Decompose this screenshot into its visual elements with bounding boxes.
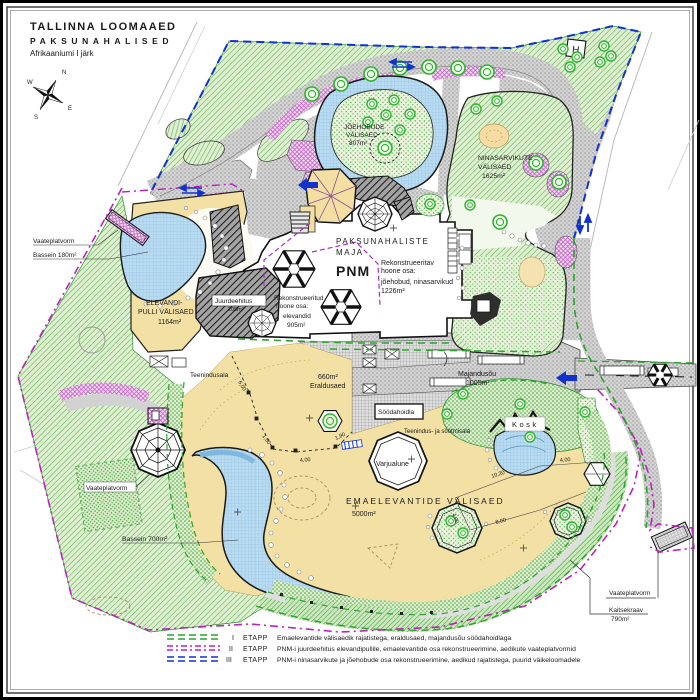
svg-text:elevandid: elevandid xyxy=(283,313,311,320)
svg-text:Vaateplatvorm: Vaateplatvorm xyxy=(609,590,650,597)
svg-text:Vaateplatvorm: Vaateplatvorm xyxy=(86,485,127,492)
svg-text:1005m²: 1005m² xyxy=(466,380,490,387)
svg-text:PAKSUNAHALISTE: PAKSUNAHALISTE xyxy=(336,237,429,246)
svg-text:VÄLISAED: VÄLISAED xyxy=(346,131,378,139)
svg-text:4,00: 4,00 xyxy=(300,457,311,464)
svg-text:NINASARVIKUTE: NINASARVIKUTE xyxy=(478,155,533,162)
svg-text:Söödahoidla: Söödahoidla xyxy=(378,409,415,416)
svg-text:I: I xyxy=(232,635,234,642)
svg-text:Majandusõu: Majandusõu xyxy=(458,371,496,378)
svg-text:905m²: 905m² xyxy=(287,322,306,329)
svg-text:ETAPP: ETAPP xyxy=(243,635,268,642)
svg-text:Teenindusala: Teenindusala xyxy=(190,372,229,379)
svg-text:ETAPP: ETAPP xyxy=(243,646,268,653)
svg-text:Bassein 180m²: Bassein 180m² xyxy=(33,252,77,259)
svg-text:Teenindus- ja söötmisala: Teenindus- ja söötmisala xyxy=(404,429,471,435)
svg-text:790m²: 790m² xyxy=(611,616,630,623)
svg-text:VÄLISAED: VÄLISAED xyxy=(478,163,511,171)
svg-text:5000m²: 5000m² xyxy=(352,511,376,518)
svg-text:JÕEHOBUDE: JÕEHOBUDE xyxy=(344,122,385,131)
svg-text:MAJA: MAJA xyxy=(336,248,364,257)
svg-text:205m²: 205m² xyxy=(228,307,244,313)
svg-text:Bassein 700m²: Bassein 700m² xyxy=(122,536,168,543)
svg-text:jõehobud, ninasarvikud: jõehobud, ninasarvikud xyxy=(380,279,453,286)
svg-text:Kosk: Kosk xyxy=(512,420,539,429)
svg-text:ETAPP: ETAPP xyxy=(243,657,268,664)
svg-text:hoone osa:: hoone osa: xyxy=(381,268,416,275)
svg-text:E: E xyxy=(68,106,72,112)
svg-text:EMAELEVANTIDE VÄLISAED: EMAELEVANTIDE VÄLISAED xyxy=(346,496,505,506)
svg-text:Emaelevantide välisaedik rajat: Emaelevantide välisaedik rajatistega, er… xyxy=(277,635,511,642)
svg-text:Kaitsekraav: Kaitsekraav xyxy=(609,607,644,614)
svg-text:Rekonstrueeritud: Rekonstrueeritud xyxy=(274,295,324,302)
svg-text:Afrikaaniumi I järk: Afrikaaniumi I järk xyxy=(30,49,95,58)
svg-text:III: III xyxy=(226,657,232,664)
svg-text:PULLI VÄLISAED: PULLI VÄLISAED xyxy=(138,308,194,316)
svg-text:Juurdeehitus: Juurdeehitus xyxy=(215,298,253,305)
svg-text:Rekonstrueeritav: Rekonstrueeritav xyxy=(381,260,434,267)
svg-text:Varjualune: Varjualune xyxy=(376,461,409,468)
svg-text:ELEVANDI-: ELEVANDI- xyxy=(146,300,183,307)
svg-text:660m²: 660m² xyxy=(318,374,339,381)
svg-text:807m²: 807m² xyxy=(349,140,368,147)
svg-text:PAKSUNAHALISED: PAKSUNAHALISED xyxy=(30,36,173,46)
svg-text:PNM-i ninasarvikute ja jõehob: PNM-i ninasarvikute ja jõehobude osa rek… xyxy=(277,657,581,664)
svg-text:4,00: 4,00 xyxy=(560,457,571,464)
svg-text:1625m²: 1625m² xyxy=(482,173,506,180)
svg-text:S: S xyxy=(34,115,38,121)
svg-text:PNM-i juurdeehitus elevandipu: PNM-i juurdeehitus elevandipullile, emae… xyxy=(277,646,576,653)
svg-text:W: W xyxy=(27,80,33,86)
svg-text:1164m²: 1164m² xyxy=(158,319,182,326)
svg-text:1226m²: 1226m² xyxy=(381,288,405,295)
svg-text:Vaateplatvorm: Vaateplatvorm xyxy=(33,238,74,245)
svg-text:hoone osa:: hoone osa: xyxy=(276,303,308,310)
svg-text:II: II xyxy=(229,646,233,653)
svg-text:N: N xyxy=(62,70,66,76)
svg-text:PNM: PNM xyxy=(336,263,370,279)
svg-text:Eraldusaed: Eraldusaed xyxy=(310,383,346,390)
svg-text:TALLINNA LOOMAAED: TALLINNA LOOMAAED xyxy=(30,21,176,33)
